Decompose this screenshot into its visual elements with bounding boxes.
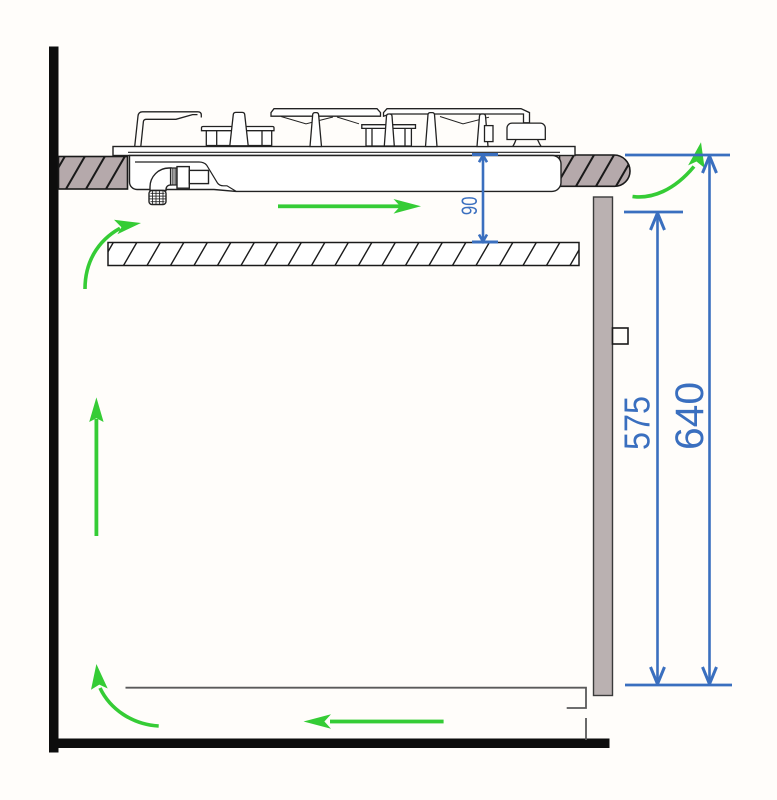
svg-text:575: 575 xyxy=(618,396,658,450)
svg-text:90: 90 xyxy=(458,196,483,215)
svg-text:640: 640 xyxy=(666,382,712,450)
